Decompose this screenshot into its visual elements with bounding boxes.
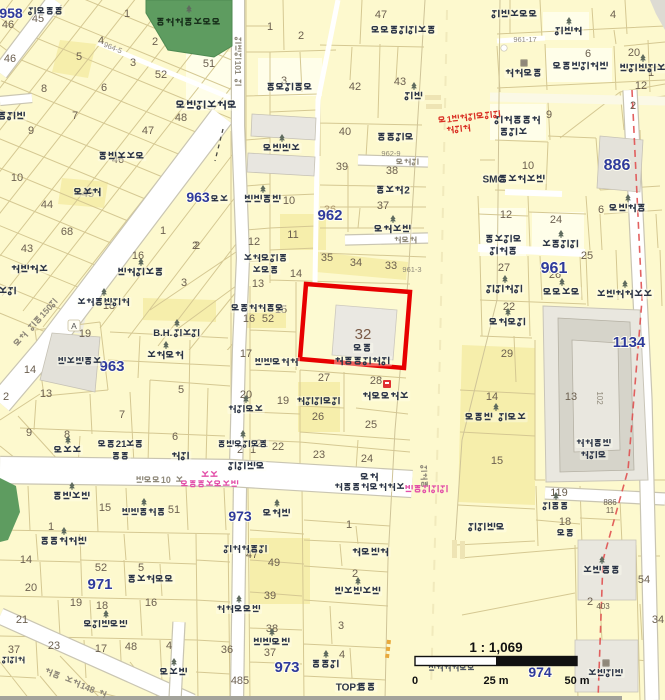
svg-text:101: 101 <box>233 61 243 75</box>
svg-text:52: 52 <box>95 562 107 574</box>
svg-text:50 m: 50 m <box>564 675 589 687</box>
svg-text:10: 10 <box>11 172 23 184</box>
svg-text:37: 37 <box>8 644 20 656</box>
svg-text:26: 26 <box>312 411 324 423</box>
svg-text:42: 42 <box>349 81 361 93</box>
svg-text:2: 2 <box>3 391 9 403</box>
svg-text:962-9: 962-9 <box>381 149 400 158</box>
svg-text:6: 6 <box>101 82 107 94</box>
svg-text:13: 13 <box>252 278 264 290</box>
svg-text:40: 40 <box>339 126 351 138</box>
svg-text:15: 15 <box>99 502 111 514</box>
svg-text:22: 22 <box>272 441 284 453</box>
svg-text:10: 10 <box>161 475 171 485</box>
svg-text:4: 4 <box>166 640 172 652</box>
svg-text:963: 963 <box>99 358 124 375</box>
svg-text:9: 9 <box>26 427 32 439</box>
svg-text:973: 973 <box>274 659 299 676</box>
svg-text:5: 5 <box>76 51 82 63</box>
svg-text:12: 12 <box>500 209 512 221</box>
svg-text:A: A <box>71 321 77 331</box>
svg-text:14: 14 <box>24 364 36 376</box>
svg-text:971: 971 <box>87 576 112 593</box>
svg-text:4: 4 <box>610 9 616 21</box>
svg-text:24: 24 <box>550 214 562 226</box>
svg-text:2: 2 <box>587 596 593 608</box>
svg-text:16: 16 <box>145 597 157 609</box>
svg-text:23: 23 <box>48 640 60 652</box>
svg-text:25: 25 <box>365 419 377 431</box>
svg-text:963: 963 <box>186 189 210 205</box>
svg-text:36: 36 <box>221 644 233 656</box>
svg-text:21: 21 <box>16 614 28 626</box>
svg-text:119: 119 <box>550 487 568 499</box>
svg-text:44: 44 <box>41 199 53 211</box>
svg-text:17: 17 <box>240 348 252 360</box>
svg-text:15: 15 <box>491 455 503 467</box>
svg-text:37: 37 <box>264 647 276 659</box>
svg-text:7: 7 <box>119 409 125 421</box>
svg-text:2: 2 <box>152 36 158 48</box>
svg-text:7: 7 <box>72 110 78 122</box>
svg-text:51: 51 <box>168 504 180 516</box>
svg-text:13: 13 <box>40 388 52 400</box>
svg-text:10: 10 <box>522 160 534 172</box>
svg-text:28: 28 <box>370 375 382 387</box>
svg-text:1: 1 <box>346 519 352 531</box>
svg-text:1: 1 <box>160 225 166 237</box>
svg-text:19: 19 <box>79 328 91 340</box>
svg-text:6: 6 <box>585 48 591 60</box>
svg-text:46: 46 <box>4 53 16 65</box>
svg-text:20: 20 <box>628 47 640 59</box>
svg-text:24: 24 <box>361 453 373 465</box>
svg-text:43: 43 <box>394 76 406 88</box>
svg-text:TOP1: TOP1 <box>336 682 362 693</box>
svg-text:13: 13 <box>565 391 577 403</box>
svg-text:962: 962 <box>317 207 342 224</box>
svg-text:2: 2 <box>404 185 410 196</box>
svg-text:14: 14 <box>290 268 302 280</box>
svg-text:6: 6 <box>172 431 178 443</box>
svg-text:20: 20 <box>25 582 37 594</box>
svg-text:886: 886 <box>604 157 631 174</box>
svg-text:6: 6 <box>598 204 604 216</box>
svg-text:52: 52 <box>155 69 167 81</box>
svg-text:9: 9 <box>546 109 552 121</box>
svg-text:0: 0 <box>412 675 418 687</box>
svg-text:5: 5 <box>138 562 144 574</box>
svg-text:39: 39 <box>264 590 276 602</box>
svg-text:B.H.: B.H. <box>153 328 172 339</box>
svg-text:11: 11 <box>606 506 615 515</box>
svg-text:17: 17 <box>95 643 107 655</box>
svg-text:19: 19 <box>70 597 82 609</box>
svg-text:47: 47 <box>375 9 387 21</box>
svg-text:35: 35 <box>321 252 333 264</box>
svg-text:974: 974 <box>528 664 552 680</box>
svg-text:961: 961 <box>541 260 568 277</box>
svg-text:25 m: 25 m <box>483 675 508 687</box>
svg-text:38: 38 <box>386 165 398 177</box>
svg-text:961-17: 961-17 <box>513 35 536 44</box>
svg-text:51: 51 <box>203 58 215 70</box>
svg-text:18: 18 <box>96 600 108 612</box>
svg-text:1: 1 <box>48 521 54 533</box>
svg-text:2: 2 <box>630 100 636 112</box>
svg-text:9: 9 <box>28 125 34 137</box>
svg-text:68: 68 <box>61 226 73 238</box>
svg-text:485: 485 <box>231 675 249 687</box>
svg-text:8: 8 <box>41 83 47 95</box>
svg-text:10: 10 <box>283 195 295 207</box>
svg-text:25: 25 <box>581 250 593 262</box>
svg-text:1134: 1134 <box>613 334 646 351</box>
svg-text:3: 3 <box>338 620 344 632</box>
svg-text:403: 403 <box>596 602 610 611</box>
svg-text:21: 21 <box>116 439 127 450</box>
svg-text:2: 2 <box>298 30 304 42</box>
svg-text:12: 12 <box>635 80 647 92</box>
svg-text:37: 37 <box>377 200 389 212</box>
svg-text:27: 27 <box>498 262 510 274</box>
svg-text:14: 14 <box>20 554 32 566</box>
svg-text:29: 29 <box>501 348 513 360</box>
svg-text:961-3: 961-3 <box>402 265 421 274</box>
svg-text:1 : 1,069: 1 : 1,069 <box>469 640 522 655</box>
svg-text:5: 5 <box>178 384 184 396</box>
svg-text:23: 23 <box>313 449 325 461</box>
svg-text:27: 27 <box>318 372 330 384</box>
svg-text:54: 54 <box>638 574 650 586</box>
svg-text:47: 47 <box>142 125 154 137</box>
svg-text:12: 12 <box>248 236 260 248</box>
svg-text:32: 32 <box>355 326 372 343</box>
svg-text:973: 973 <box>228 508 252 524</box>
svg-text:16: 16 <box>243 313 255 325</box>
svg-text:18: 18 <box>559 516 571 528</box>
svg-text:3: 3 <box>130 57 136 69</box>
svg-text:52: 52 <box>262 313 274 325</box>
svg-text:43: 43 <box>21 243 33 255</box>
svg-text:49: 49 <box>268 557 280 569</box>
svg-text:19: 19 <box>277 395 289 407</box>
svg-text:3: 3 <box>181 277 187 289</box>
svg-text:34: 34 <box>652 614 664 626</box>
svg-text:958: 958 <box>0 5 23 21</box>
svg-text:33: 33 <box>385 260 397 272</box>
svg-text:48: 48 <box>175 112 187 124</box>
svg-text:2: 2 <box>352 568 358 580</box>
svg-text:11: 11 <box>287 229 298 241</box>
svg-text:34: 34 <box>350 257 362 269</box>
svg-text:1: 1 <box>267 21 273 33</box>
svg-text:14: 14 <box>486 391 498 403</box>
svg-text:39: 39 <box>336 161 348 173</box>
svg-text:102: 102 <box>595 391 604 405</box>
svg-text:48: 48 <box>125 641 137 653</box>
svg-text:1: 1 <box>124 8 130 20</box>
svg-text:2: 2 <box>194 240 200 252</box>
